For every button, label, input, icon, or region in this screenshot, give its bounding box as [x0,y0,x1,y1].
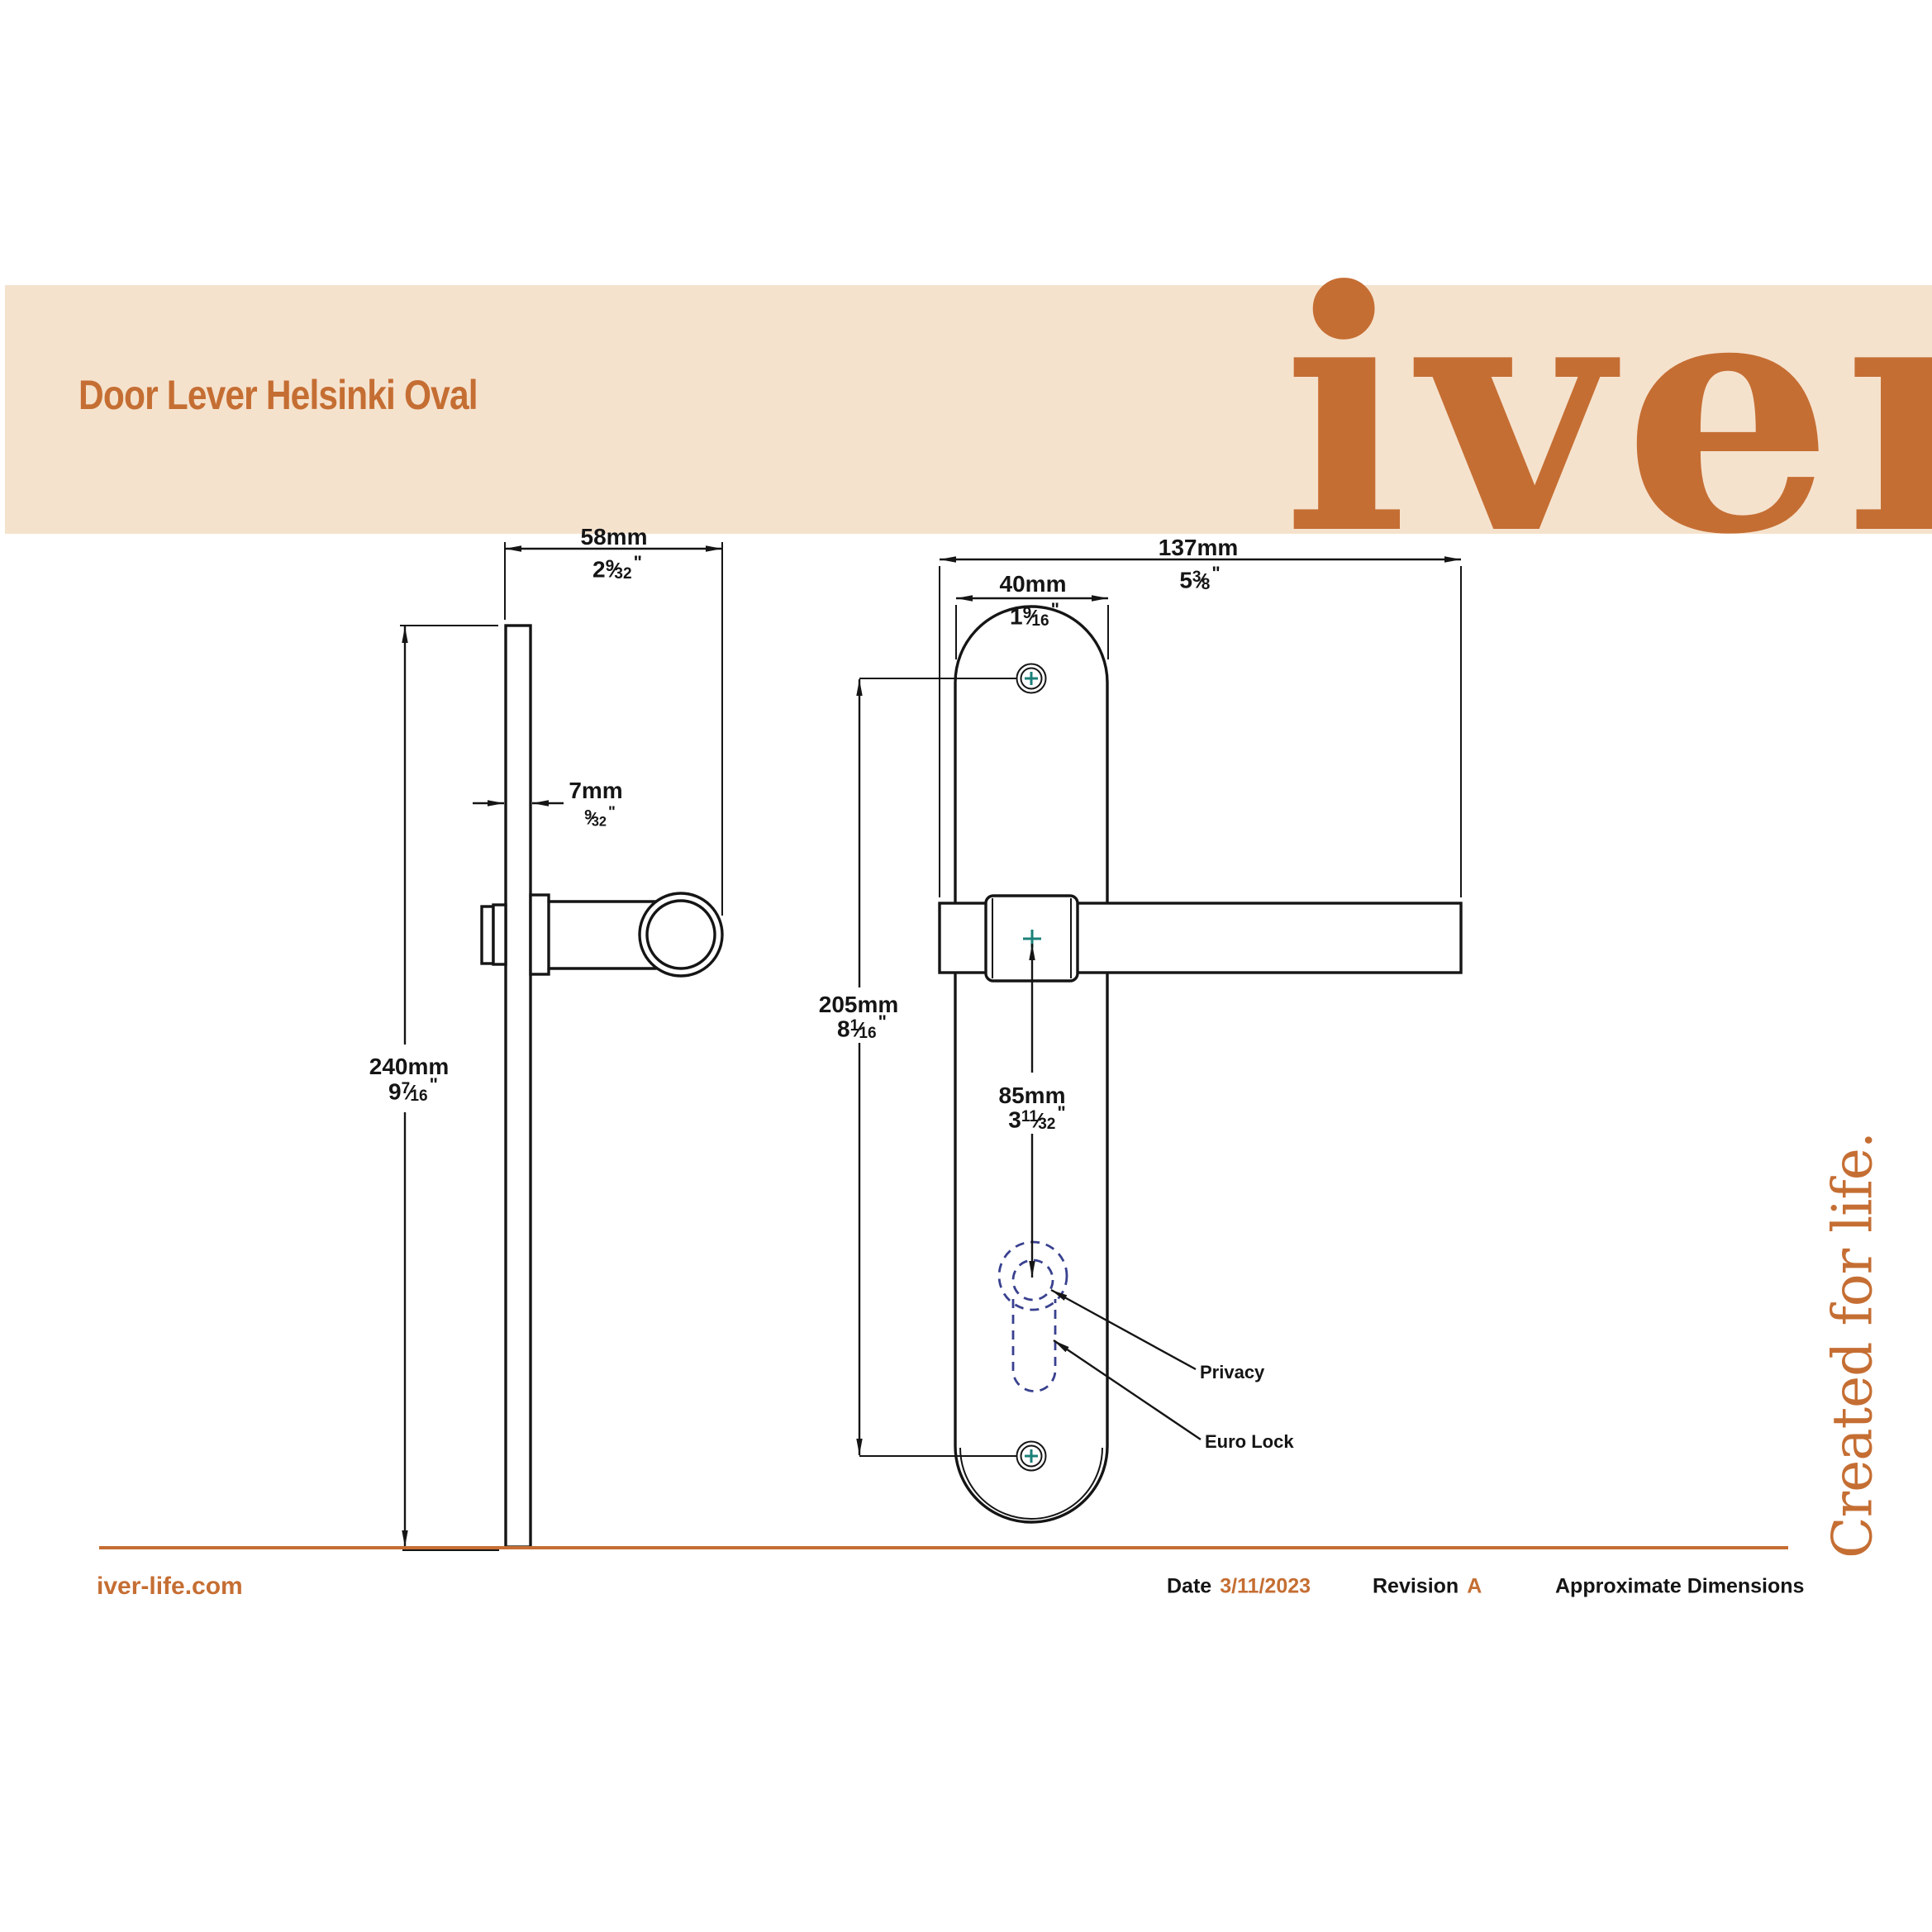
revision-label: Revision [1373,1575,1459,1598]
date-value: 3/11/2023 [1220,1575,1311,1598]
dim-depth-imperial: 29⁄32" [592,552,642,583]
dim-hub-to-keyhole-imperial: 311⁄32" [1008,1102,1065,1134]
revision-field: RevisionA [1373,1575,1482,1599]
dim-thickness-metric: 7mm [569,778,622,804]
dim-lever-length-metric: 137mm [1159,535,1239,561]
side-view-lever [531,893,722,976]
technical-drawing-layer [0,0,1932,1932]
dim-depth-metric: 58mm [581,524,648,550]
date-field: Date3/11/2023 [1167,1575,1311,1599]
front-view-drawing [859,559,1461,1522]
dim-plate-height-imperial: 97⁄16" [388,1074,438,1106]
website-link[interactable]: iver-life.com [97,1573,243,1601]
footer-divider [99,1546,1788,1549]
dimension-depth-lines [505,542,722,916]
dimensions-note: Approximate Dimensions [1555,1575,1804,1599]
spec-sheet-page: { "header": { "title": "Door Lever Helsi… [0,0,1932,1932]
revision-value: A [1467,1575,1482,1598]
bottom-screw-hole [1017,1442,1046,1471]
privacy-label: Privacy [1200,1362,1264,1383]
dim-plate-width-imperial: 19⁄16" [1010,599,1059,631]
date-label: Date [1167,1575,1211,1598]
dim-thickness-imperial: 9⁄32" [584,802,616,830]
side-view-grip-outer-circle [640,893,722,976]
dim-screw-centers-imperial: 81⁄16" [837,1011,887,1043]
top-screw-hole [1017,664,1046,693]
euro-lock-label: Euro Lock [1205,1431,1294,1453]
side-view-grip-inner-circle [647,901,715,968]
side-view-backplate [506,626,531,1547]
dim-lever-length-imperial: 53⁄8" [1179,563,1220,594]
dim-plate-width-metric: 40mm [1000,571,1067,597]
side-view-drawing [400,542,722,1550]
side-view-spindle-cap [482,905,506,964]
